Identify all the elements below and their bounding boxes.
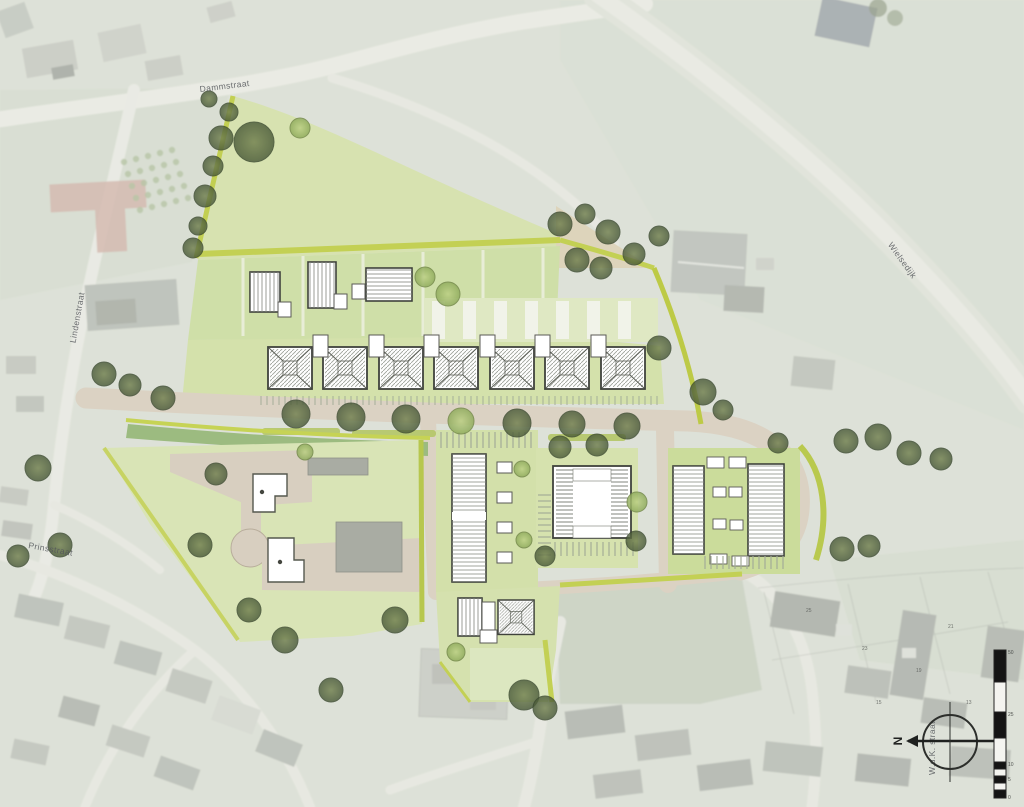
tree-light	[627, 492, 647, 512]
apartment-bar-south	[573, 526, 611, 538]
house-hipped	[268, 347, 312, 389]
gable-roof-hatch	[308, 262, 336, 308]
house-hipped	[498, 600, 534, 634]
tree-light	[297, 444, 313, 460]
house-hipped	[545, 347, 589, 389]
parking-south	[700, 556, 788, 569]
tree	[188, 533, 212, 557]
scale-segment	[994, 783, 1006, 790]
parking-south	[552, 542, 634, 556]
tree	[7, 545, 29, 567]
compass-north-label: N	[891, 737, 905, 746]
tree	[713, 400, 733, 420]
tree	[690, 379, 716, 405]
tree	[548, 212, 572, 236]
rowhouse-gap	[452, 512, 486, 520]
tree	[237, 598, 261, 622]
block-rowhouses	[436, 430, 538, 592]
garden-shed	[497, 492, 512, 503]
tree	[834, 429, 858, 453]
tree	[151, 386, 175, 410]
scale-segment	[994, 650, 1006, 682]
tree	[533, 696, 557, 720]
tree	[897, 441, 921, 465]
estate-shed-south	[336, 522, 402, 572]
tree	[203, 156, 223, 176]
garage	[334, 294, 347, 309]
tree	[596, 220, 620, 244]
house-number: 15	[876, 700, 882, 706]
tree	[319, 678, 343, 702]
tree	[272, 627, 298, 653]
tree	[503, 409, 531, 437]
house-hipped	[434, 347, 478, 389]
tree	[865, 424, 891, 450]
villa-detail	[278, 560, 282, 564]
garden-shed	[497, 552, 512, 563]
tree	[189, 217, 207, 235]
tree	[535, 546, 555, 566]
scale-segment	[994, 738, 1006, 762]
scale-segment	[994, 682, 1006, 712]
scale-segment	[994, 769, 1006, 776]
gable-roof-hatch	[458, 598, 482, 636]
tree	[586, 434, 608, 456]
house-number: 25	[806, 608, 812, 614]
street-west	[428, 421, 436, 592]
apartment-wing-east	[611, 469, 628, 535]
apartment-bar-north	[573, 469, 611, 481]
site-plan-map: Dammstraat Lindenstraat Wielsedijk Prins…	[0, 0, 1024, 807]
house-hipped	[601, 347, 645, 389]
tree	[220, 103, 238, 121]
tree	[623, 243, 645, 265]
tree	[382, 607, 408, 633]
hedge-estate-east	[421, 440, 422, 622]
tree-light	[514, 461, 530, 477]
tree	[626, 531, 646, 551]
tree	[183, 238, 203, 258]
tree	[209, 126, 233, 150]
slab-west-hatch	[673, 466, 704, 554]
tree	[194, 185, 216, 207]
slab-east-hatch	[748, 464, 784, 556]
house-extension	[482, 602, 495, 630]
house-hipped	[379, 347, 423, 389]
house-hipped	[323, 347, 367, 389]
scale-tick: 5	[1008, 777, 1011, 783]
tree	[559, 411, 585, 437]
scale-tick: 0	[1008, 795, 1011, 801]
house-number: 19	[916, 668, 922, 674]
tree-light	[448, 408, 474, 434]
scale-segment	[994, 712, 1006, 738]
garage	[352, 284, 365, 299]
site-plan-page: Dammstraat Lindenstraat Wielsedijk Prins…	[0, 0, 1024, 807]
scale-tick: 10	[1008, 762, 1014, 768]
gable-roof-hatch	[366, 268, 412, 301]
tree	[614, 413, 640, 439]
estate-shed-north	[308, 458, 368, 475]
tree-light	[436, 282, 460, 306]
garage	[480, 630, 497, 643]
garden-shed	[497, 462, 512, 473]
tree	[92, 362, 116, 386]
parking-strip-main	[258, 396, 658, 405]
tree	[25, 455, 51, 481]
tree	[768, 433, 788, 453]
tree	[119, 374, 141, 396]
scale-segment	[994, 790, 1006, 798]
tree	[930, 448, 952, 470]
tree	[858, 535, 880, 557]
scale-segment	[994, 762, 1006, 769]
gable-roof-hatch	[250, 272, 280, 312]
tree	[205, 463, 227, 485]
apartment-wing-west	[556, 469, 573, 535]
scale-segment	[994, 776, 1006, 783]
scale-tick: 25	[1008, 712, 1014, 718]
tree-light	[415, 267, 435, 287]
tree	[575, 204, 595, 224]
house-number: 13	[966, 700, 972, 706]
tree	[549, 436, 571, 458]
tree	[647, 336, 671, 360]
tree	[282, 400, 310, 428]
tree-light	[290, 118, 310, 138]
house-number: 21	[948, 624, 954, 630]
tree	[337, 403, 365, 431]
tree	[830, 537, 854, 561]
house-number: 23	[862, 646, 868, 652]
street-label-bottom-right: W.d.K. straat	[927, 721, 937, 775]
villa-detail	[260, 490, 264, 494]
house-hipped	[490, 347, 534, 389]
street-east	[665, 429, 668, 584]
tree	[590, 257, 612, 279]
garage	[278, 302, 291, 317]
tree	[392, 405, 420, 433]
scale-tick: 50	[1008, 650, 1014, 656]
tree	[234, 122, 274, 162]
tree	[565, 248, 589, 272]
tree-light	[516, 532, 532, 548]
tree	[649, 226, 669, 246]
tree-light	[447, 643, 465, 661]
garden-shed	[497, 522, 512, 533]
